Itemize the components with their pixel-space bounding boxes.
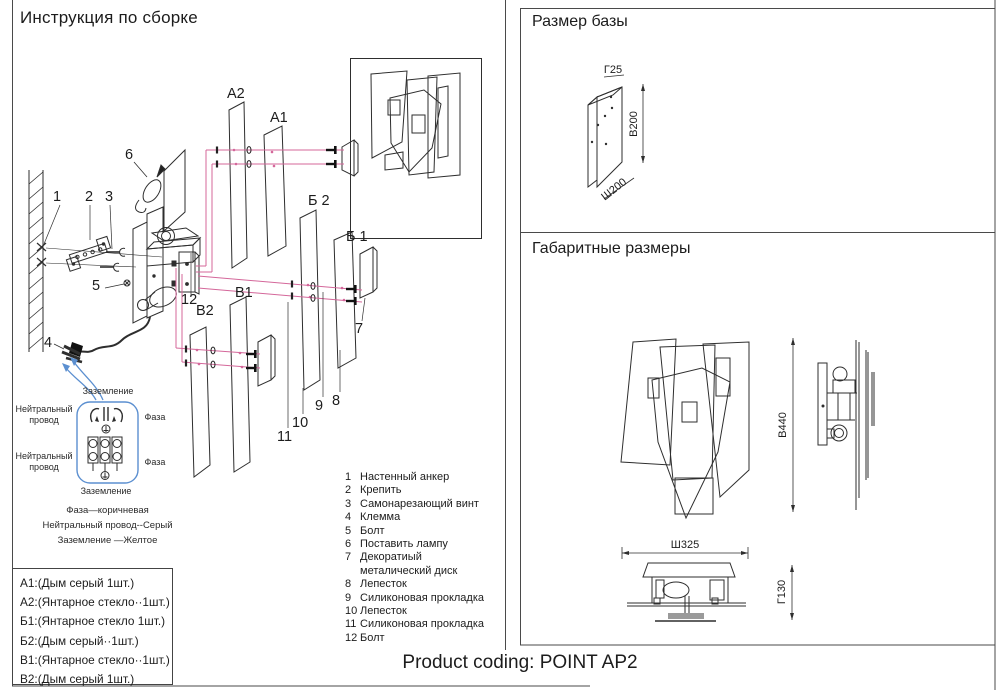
parts-list-item: 3Самонарезающий винт	[345, 498, 484, 511]
bulb-icon	[134, 150, 185, 231]
wire-hooks-icon	[91, 407, 123, 422]
legend-neutral: Нейтральный провод--Серый	[20, 518, 195, 533]
base-size-title: Размер базы	[532, 13, 628, 31]
overall-size-title: Габаритные размеры	[532, 240, 690, 258]
parts-list: 1Настенный анкер 2Крепить 3Самонарезающи…	[345, 471, 484, 645]
wiring-ground-top-label: Заземление	[72, 386, 144, 397]
callout-6: 6	[125, 147, 133, 163]
panel-a1	[264, 126, 286, 256]
legend-ground: Заземление —Желтое	[20, 533, 195, 548]
bracket-icon	[66, 236, 110, 271]
panel-v1	[230, 297, 250, 472]
screw-icon	[100, 248, 125, 271]
overall-size-drawing: В440 Ш325 Г130	[621, 338, 874, 621]
wall-anchor-icon	[37, 243, 162, 267]
variant-row: A1:(Дым серый 1шт.)	[20, 574, 172, 593]
parts-list-item: 11Силиконовая прокладка	[345, 618, 484, 631]
parts-list-item: 9Силиконовая прокладка	[345, 592, 484, 605]
parts-list-item: 2Крепить	[345, 484, 484, 497]
parts-list-item: 10Лепесток	[345, 605, 484, 618]
instruction-sheet: Г25 В200 Ш200	[0, 0, 1000, 690]
callout-12: 12	[181, 292, 197, 308]
parts-list-item: 5Болт	[345, 525, 484, 538]
callout-v2: B2	[196, 303, 214, 319]
variant-row: B2:(Дым серый 1шт.)	[20, 670, 172, 689]
variant-row: Б2:(Дым серый··1шт.)	[20, 632, 172, 651]
callout-v1: B1	[235, 285, 253, 301]
wiring-phase-bottom-label: Фаза	[139, 457, 171, 468]
callout-b2-cyr: Б 2	[308, 193, 330, 209]
callout-2: 2	[85, 189, 93, 205]
callout-4: 4	[44, 335, 52, 351]
callout-11: 11	[277, 429, 292, 445]
parts-list-item: 6Поставить лампу	[345, 538, 484, 551]
dim-depth-label: Г25	[604, 64, 622, 76]
parts-list-item: 1Настенный анкер	[345, 471, 484, 484]
wiring-diagram	[77, 402, 138, 483]
bolt-icon	[105, 280, 130, 288]
parts-list-item: 12Болт	[345, 632, 484, 645]
wiring-phase-top-label: Фаза	[139, 412, 171, 423]
callout-1: 1	[53, 189, 61, 205]
callout-a1: A1	[270, 110, 288, 126]
callout-8: 8	[332, 393, 340, 409]
panel-a2	[229, 102, 247, 268]
wiring-ground-bottom-label: Заземление	[70, 486, 142, 497]
legend-phase: Фаза—коричневая	[20, 503, 195, 518]
base-size-drawing: Г25 В200 Ш200	[588, 64, 645, 203]
parts-list-item: 7Декоратиый металический диск	[345, 551, 484, 578]
panel-b2-cyr	[300, 210, 320, 390]
callout-5: 5	[92, 278, 100, 294]
front-view	[621, 339, 749, 518]
assembly-diagram	[29, 59, 482, 484]
parts-list-item: 8Лепесток	[345, 578, 484, 591]
terminal-block-icon	[88, 437, 122, 471]
dim-overall-depth-label: Г130	[776, 580, 788, 604]
dim-overall-width-label: Ш325	[671, 539, 699, 551]
cable	[54, 317, 150, 362]
callout-7: 7	[355, 321, 363, 337]
glass-variants-box: A1:(Дым серый 1шт.) A2:(Янтарное стекло·…	[12, 568, 173, 685]
callout-a2: A2	[227, 86, 245, 102]
assembled-inset	[351, 59, 482, 239]
callout-b1-cyr: Б 1	[346, 229, 368, 245]
callout-3: 3	[105, 189, 113, 205]
parts-list-item: 4Клемма	[345, 511, 484, 524]
side-view	[818, 340, 874, 510]
wiring-neutral-top-label: Нейтральный провод	[14, 404, 74, 425]
variant-row: B1:(Янтарное стекло··1шт.)	[20, 651, 172, 670]
variant-row: A2:(Янтарное стекло··1шт.)	[20, 593, 172, 612]
wiring-neutral-bottom-label: Нейтральный провод	[14, 451, 74, 472]
dim-overall-height-label: В440	[777, 412, 789, 438]
page-title: Инструкция по сборке	[20, 8, 198, 28]
top-view	[627, 563, 746, 621]
dim-height-label: В200	[628, 111, 640, 137]
variant-row: Б1:(Янтарное стекло 1шт.)	[20, 612, 172, 631]
callout-9: 9	[315, 398, 323, 414]
product-coding: Product coding: POINT AP2	[300, 652, 740, 674]
wiring-legend: Фаза—коричневая Нейтральный провод--Серы…	[20, 503, 195, 548]
callout-10: 10	[292, 415, 308, 431]
